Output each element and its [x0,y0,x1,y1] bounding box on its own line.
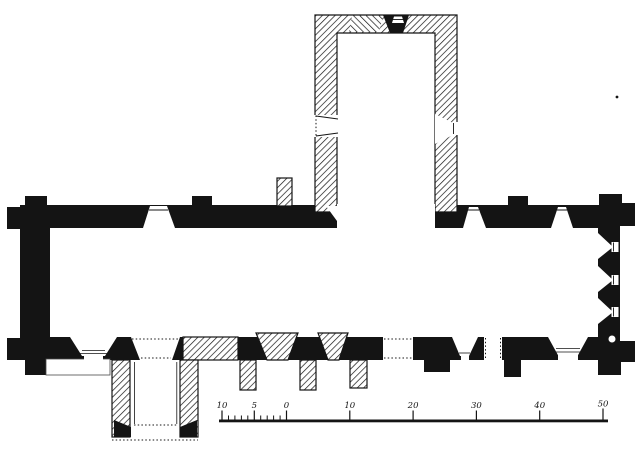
south-buttress-black-2 [504,359,521,377]
se-buttress-east [619,341,635,362]
east-window-1-slit [612,242,619,252]
sw-buttress-south [25,359,47,375]
scale-label: 10 [217,401,228,411]
east-window-2-slit [612,275,619,285]
se-buttress-south [598,359,621,375]
south-buttress-hatched-1 [240,360,256,390]
scale-label: 50 [598,400,609,410]
tower-arch [326,204,435,229]
north-buttress-1 [192,196,212,206]
east-wall-drain-hole [609,336,616,343]
scale-label: 20 [407,401,419,411]
priest-door-opening [383,337,413,360]
north-pier [277,178,292,206]
scale-label: 10 [344,401,355,411]
floor-plan-figure: 10 5 0 10 20 30 40 50 [0,0,642,454]
nw-buttress-west [7,207,21,229]
tower-arch-opening [337,204,435,229]
south-wall-rebuilt-segment [183,337,238,360]
scale-bar: 10 5 0 10 20 30 40 50 [217,400,609,423]
north-buttress-2 [508,196,528,206]
nave-west-wall [20,205,50,360]
tower-east-window-slit [452,122,458,135]
former-structure-outline [46,359,110,375]
ne-buttress-north [599,194,622,206]
print-speck [616,96,619,99]
scale-label: 5 [252,401,257,411]
tower-walls [315,15,457,212]
south-window-2-outer-gap [461,354,469,360]
east-door-opening [484,337,502,360]
ne-buttress-east [619,203,635,226]
south-buttress-hatched-2 [300,360,316,390]
scale-label: 30 [471,401,482,411]
south-window-3-outer-gap [558,354,578,360]
south-window-1-outer-gap [84,354,103,360]
sw-buttress-west [7,338,21,360]
nw-buttress-north [25,196,47,206]
east-window-3-slit [612,307,619,317]
south-buttress-black-1 [424,359,450,372]
south-buttress-hatched-3 [350,360,367,388]
church-floor-plan: 10 5 0 10 20 30 40 50 [0,0,642,454]
scale-label: 0 [284,401,290,411]
tower-west-window [313,115,338,137]
tower-north-wall-backhatch [349,16,383,32]
scale-label: 40 [533,401,545,411]
scale-bar-labels: 10 5 0 10 20 30 40 50 [217,400,609,412]
